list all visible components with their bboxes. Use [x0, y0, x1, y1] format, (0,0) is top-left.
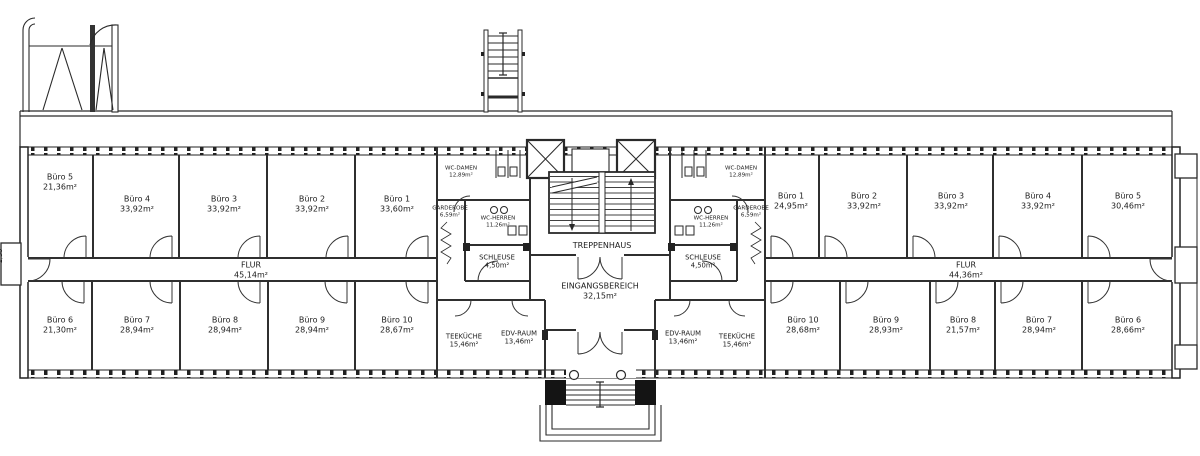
external-ladder-top — [481, 30, 525, 112]
column-icon — [617, 371, 626, 380]
sink-icon — [695, 207, 702, 214]
room-label-teekueche-left: TEEKÜCHE15,46m² — [446, 333, 482, 350]
room-label-buero10-left: Büro 1028,67m² — [380, 316, 414, 337]
entrance-steps — [540, 369, 661, 441]
canopy-band — [20, 111, 1172, 147]
room-label-schleuse-right: SCHLEUSE4,50m² — [685, 254, 721, 271]
corridor-label-right: FLUR44,36m² — [949, 261, 983, 282]
room-label-treppenhaus: TREPPENHAUS — [573, 241, 632, 251]
room-label-buero3-left: Büro 333,92m² — [207, 195, 241, 216]
room-label-buero8-right: Büro 821,57m² — [946, 316, 980, 337]
room-label-buero9-right: Büro 928,93m² — [869, 316, 903, 337]
west-corridor-door — [28, 259, 50, 281]
room-label-buero6-left: Büro 621,30m² — [43, 316, 77, 337]
floor-plan: Büro 521,36m² Büro 433,92m² Büro 333,92m… — [0, 0, 1200, 456]
stair-divider — [599, 172, 605, 233]
east-balcony-bottom — [1175, 345, 1197, 369]
east-balcony-mid — [1175, 247, 1197, 283]
room-label-buero3-right: Büro 333,92m² — [934, 192, 968, 213]
room-label-edv-right: EDV-RAUM13,46m² — [665, 330, 701, 347]
stair-core — [527, 140, 655, 233]
room-label-buero7-right: Büro 728,94m² — [1022, 316, 1056, 337]
plan-drawing — [0, 0, 1200, 456]
room-label-garderobe-right: GARDEROBE6,59m² — [733, 205, 769, 218]
entrance-double-door — [578, 257, 622, 279]
room-label-edv-left: EDV-RAUM13,46m² — [501, 330, 537, 347]
room-label-buero4-right: Büro 433,92m² — [1021, 192, 1055, 213]
column-icon — [570, 371, 579, 380]
entrance-ramp — [540, 405, 661, 441]
room-label-schleuse-left: SCHLEUSE4,50m² — [479, 254, 515, 271]
room-label-teekueche-right: TEEKÜCHE15,46m² — [719, 333, 755, 350]
room-label-buero2-right: Büro 233,92m² — [847, 192, 881, 213]
room-label-wc-damen-right: WC-DAMEN12,89m² — [725, 165, 757, 178]
room-label-buero10-right: Büro 1028,68m² — [786, 316, 820, 337]
dimension-label: 1,50 — [0, 249, 4, 263]
sink-icon — [501, 207, 508, 214]
room-label-buero8-left: Büro 828,94m² — [208, 316, 242, 337]
radiator-icon — [751, 222, 761, 264]
entrance-pier — [635, 380, 656, 405]
teekueche-door — [729, 300, 745, 316]
room-label-buero7-left: Büro 728,94m² — [120, 316, 154, 337]
room-label-buero9-left: Büro 928,94m² — [295, 316, 329, 337]
room-label-buero1-left: Büro 133,60m² — [380, 195, 414, 216]
room-label-buero5-left: Büro 521,36m² — [43, 173, 77, 194]
external-stair-left — [23, 18, 118, 112]
room-label-wc-damen-left: WC-DAMEN12,89m² — [445, 165, 477, 178]
room-label-buero1-right: Büro 124,95m² — [774, 192, 808, 213]
vestibule-double-door — [578, 332, 622, 354]
room-label-garderobe-left: GARDEROBE6,59m² — [432, 205, 468, 218]
entrance-pier — [545, 380, 566, 405]
room-label-buero4-left: Büro 433,92m² — [120, 195, 154, 216]
room-label-buero2-left: Büro 233,92m² — [295, 195, 329, 216]
sink-icon — [705, 207, 712, 214]
edv-door — [512, 300, 528, 316]
east-balcony-top — [1175, 154, 1197, 178]
room-label-buero5-right: Büro 530,46m² — [1111, 192, 1145, 213]
room-label-buero6-right: Büro 628,66m² — [1111, 316, 1145, 337]
east-corridor-door — [1150, 259, 1172, 281]
corridor-label-left: FLUR45,14m² — [234, 261, 268, 282]
radiator-icon — [441, 222, 451, 264]
sink-icon — [491, 207, 498, 214]
room-label-wc-herren-right: WC-HERREN11,26m² — [694, 215, 729, 228]
edv-door — [674, 300, 690, 316]
room-label-wc-herren-left: WC-HERREN11,26m² — [481, 215, 516, 228]
teekueche-door — [455, 300, 471, 316]
room-label-eingangsbereich: EINGANGSBEREICH32,15m² — [561, 282, 638, 303]
